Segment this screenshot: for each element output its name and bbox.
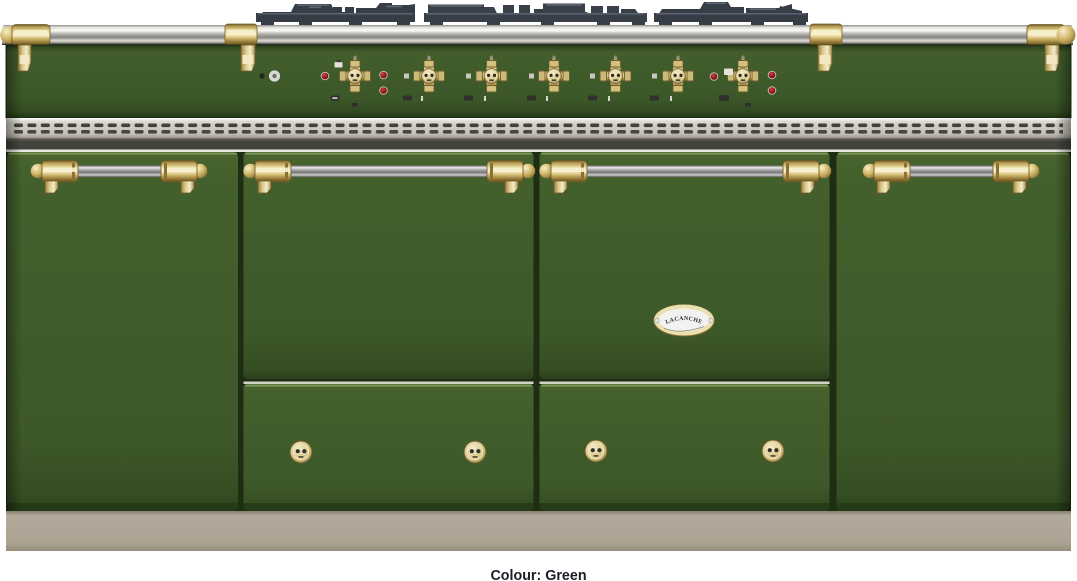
svg-text:Colour: Green: Colour: Green [490, 568, 586, 581]
